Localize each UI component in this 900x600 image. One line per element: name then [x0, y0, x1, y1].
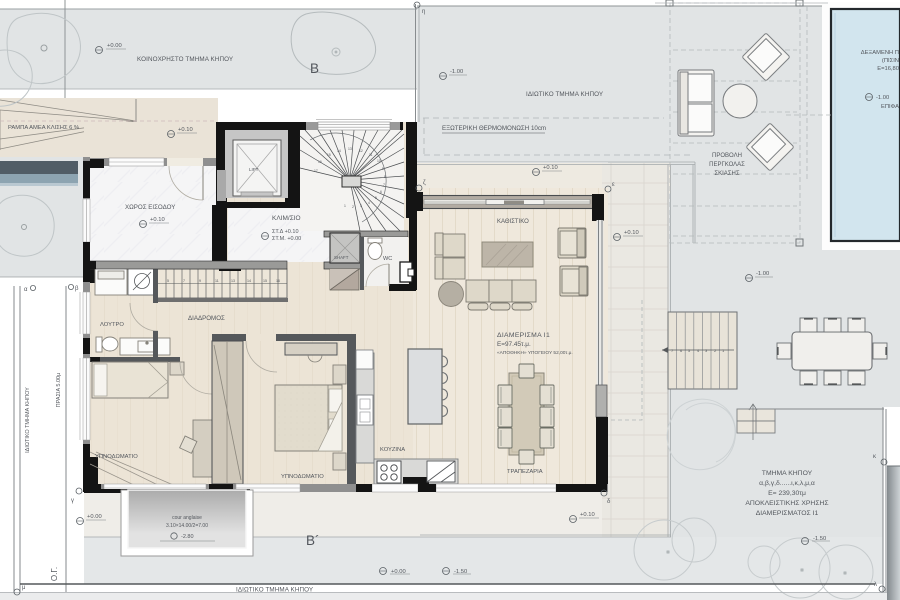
svg-text:B: B [310, 61, 319, 76]
svg-text:cour anglaise: cour anglaise [172, 515, 202, 521]
svg-text:3: 3 [360, 204, 362, 208]
svg-text:ΥΠΝΟΔΩΜΑΤΙΟ: ΥΠΝΟΔΩΜΑΤΙΟ [281, 474, 324, 480]
svg-text:(ΠΙΣΙΝ: (ΠΙΣΙΝ [882, 58, 899, 64]
svg-text:+0.10: +0.10 [580, 512, 595, 518]
svg-text:η: η [422, 9, 425, 15]
svg-text:8: 8 [384, 175, 386, 179]
svg-text:9: 9 [199, 279, 201, 283]
svg-text:-1.00: -1.00 [450, 69, 463, 75]
svg-text:11: 11 [215, 279, 219, 283]
svg-text:ΕΠΙΦΑ: ΕΠΙΦΑ [881, 104, 899, 110]
svg-text:ΠΡΑΣΙΑ 5.00μ: ΠΡΑΣΙΑ 5.00μ [56, 373, 62, 408]
svg-text:1: 1 [344, 204, 346, 208]
svg-text:ΤΜΗΜΑ ΚΗΠΟΥ: ΤΜΗΜΑ ΚΗΠΟΥ [762, 470, 813, 477]
svg-text:5: 5 [167, 279, 169, 283]
svg-text:6: 6 [380, 190, 382, 194]
svg-text:ΠΡΟΒΟΛΗ: ΠΡΟΒΟΛΗ [712, 153, 742, 159]
svg-text:9: 9 [382, 167, 384, 171]
svg-text:B´: B´ [306, 533, 320, 548]
svg-text:ΛΟΥΤΡΟ: ΛΟΥΤΡΟ [100, 322, 124, 328]
svg-text:ΚΟΙΝΟΧΡΗΣΤΟ ΤΜΗΜΑ ΚΗΠΟΥ: ΚΟΙΝΟΧΡΗΣΤΟ ΤΜΗΜΑ ΚΗΠΟΥ [137, 56, 234, 63]
svg-text:+0.10: +0.10 [624, 230, 639, 236]
svg-text:ΣΤ.Δ +0.10: ΣΤ.Δ +0.10 [272, 229, 299, 235]
svg-text:13: 13 [231, 279, 235, 283]
svg-text:+0.10: +0.10 [178, 127, 193, 133]
svg-text:-2.80: -2.80 [181, 534, 194, 540]
svg-text:+0.10: +0.10 [543, 165, 558, 171]
svg-text:ΔΕΞΑΜΕΝΗ Π: ΔΕΞΑΜΕΝΗ Π [861, 50, 899, 56]
svg-text:Ε=97.45τ.μ.: Ε=97.45τ.μ. [497, 341, 531, 348]
svg-text:10: 10 [377, 159, 381, 163]
svg-text:4: 4 [368, 201, 370, 205]
svg-text:17: 17 [314, 169, 318, 173]
svg-text:7: 7 [183, 279, 185, 283]
svg-text:ΑΠΟΚΛΕΙΣΤΙΚΗΣ ΧΡΗΣΗΣ: ΑΠΟΚΛΕΙΣΤΙΚΗΣ ΧΡΗΣΗΣ [745, 500, 828, 507]
svg-text:ΙΔΙΩΤΙΚΟ ΤΜΗΜΑ ΚΗΠΟΥ: ΙΔΙΩΤΙΚΟ ΤΜΗΜΑ ΚΗΠΟΥ [236, 587, 314, 594]
svg-text:ΚΑΘΙΣΤΙΚΟ: ΚΑΘΙΣΤΙΚΟ [497, 219, 529, 225]
svg-text:ε: ε [612, 182, 615, 188]
svg-text:12: 12 [359, 149, 363, 153]
svg-text:+0.00: +0.00 [107, 43, 122, 49]
svg-text:SHAFT: SHAFT [334, 255, 349, 260]
svg-text:7: 7 [383, 183, 385, 187]
svg-text:16: 16 [318, 160, 322, 164]
svg-text:Ε=16,80: Ε=16,80 [877, 66, 899, 72]
svg-text:11: 11 [369, 153, 373, 157]
svg-text:ΔΙΑΜΕΡΙΣΜΑ Ι1: ΔΙΑΜΕΡΙΣΜΑ Ι1 [497, 332, 550, 339]
svg-text:14: 14 [247, 279, 251, 283]
svg-text:ΙΔΙΩΤΙΚΟ ΤΜΗΜΑ ΚΗΠΟΥ: ΙΔΙΩΤΙΚΟ ΤΜΗΜΑ ΚΗΠΟΥ [25, 387, 31, 453]
svg-text:16: 16 [276, 279, 280, 283]
svg-text:ΣΚΙΑΣΗΣ: ΣΚΙΑΣΗΣ [714, 171, 739, 177]
svg-text:ΧΩΡΟΣ ΕΙΣΟΔΟΥ: ΧΩΡΟΣ ΕΙΣΟΔΟΥ [125, 204, 175, 211]
svg-text:ΥΠΝΟΔΩΜΑΤΙΟ: ΥΠΝΟΔΩΜΑΤΙΟ [95, 454, 138, 460]
svg-text:ΔΙΑΔΡΟΜΟΣ: ΔΙΑΔΡΟΜΟΣ [188, 315, 225, 322]
svg-text:+0.00: +0.00 [87, 514, 102, 520]
svg-text:Ο.Γ.: Ο.Γ. [50, 567, 59, 581]
svg-text:ΤΡΑΠΕΖΑΡΙΑ: ΤΡΑΠΕΖΑΡΙΑ [507, 469, 543, 475]
svg-text:α: α [24, 287, 28, 293]
svg-text:ΣΤ.Μ. +0.00: ΣΤ.Μ. +0.00 [272, 236, 301, 242]
svg-text:ΕΞΩΤΕΡΙΚΗ ΘΕΡΜΟΜΟΝΩΣΗ 10cm: ΕΞΩΤΕΡΙΚΗ ΘΕΡΜΟΜΟΝΩΣΗ 10cm [442, 125, 546, 132]
svg-text:ΠΕΡΓΚΟΛΑΣ: ΠΕΡΓΚΟΛΑΣ [709, 162, 745, 168]
svg-text:ΙΔΙΩΤΙΚΟ ΤΜΗΜΑ ΚΗΠΟΥ: ΙΔΙΩΤΙΚΟ ΤΜΗΜΑ ΚΗΠΟΥ [526, 91, 604, 98]
svg-text:14: 14 [337, 149, 341, 153]
svg-text:5: 5 [375, 196, 377, 200]
svg-text:-1.00: -1.00 [756, 271, 769, 277]
svg-text:α,β,γ,δ......ι,κ,λ,μ,α: α,β,γ,δ......ι,κ,λ,μ,α [759, 480, 815, 487]
svg-text:μ: μ [22, 585, 26, 591]
svg-text:λ: λ [874, 582, 877, 588]
svg-text:2: 2 [352, 205, 354, 209]
svg-text:3.10×14.00/2=7.00: 3.10×14.00/2=7.00 [166, 523, 208, 529]
svg-text:γ: γ [71, 498, 74, 504]
svg-text:ΚΛΙΜ/ΣΙΟ: ΚΛΙΜ/ΣΙΟ [272, 215, 301, 222]
svg-text:WC: WC [383, 256, 392, 262]
svg-text:+0.10: +0.10 [150, 217, 165, 223]
svg-text:13: 13 [348, 147, 352, 151]
svg-text:Ε= 239,30τμ: Ε= 239,30τμ [768, 490, 806, 497]
svg-text:15: 15 [327, 153, 331, 157]
svg-text:15: 15 [263, 279, 267, 283]
svg-text:«ΑΠΟΘΗΚΗ» ΥΠΟΓΕΙΟΥ 52,00τ.μ.: «ΑΠΟΘΗΚΗ» ΥΠΟΓΕΙΟΥ 52,00τ.μ. [497, 350, 573, 356]
svg-text:ζ: ζ [423, 180, 426, 186]
svg-text:ΔΙΑΜΕΡΙΣΜΑΤΟΣ Ι1: ΔΙΑΜΕΡΙΣΜΑΤΟΣ Ι1 [756, 510, 819, 517]
svg-text:β: β [75, 286, 79, 292]
svg-text:-1.00: -1.00 [876, 95, 889, 101]
svg-text:ΡΑΜΠΑ ΑΜΕΑ ΚΛΙΣΗΣ 6 %: ΡΑΜΠΑ ΑΜΕΑ ΚΛΙΣΗΣ 6 % [8, 125, 79, 131]
svg-text:ΚΟΥΖΙΝΑ: ΚΟΥΖΙΝΑ [380, 447, 405, 453]
svg-text:LIFT: LIFT [249, 167, 259, 172]
